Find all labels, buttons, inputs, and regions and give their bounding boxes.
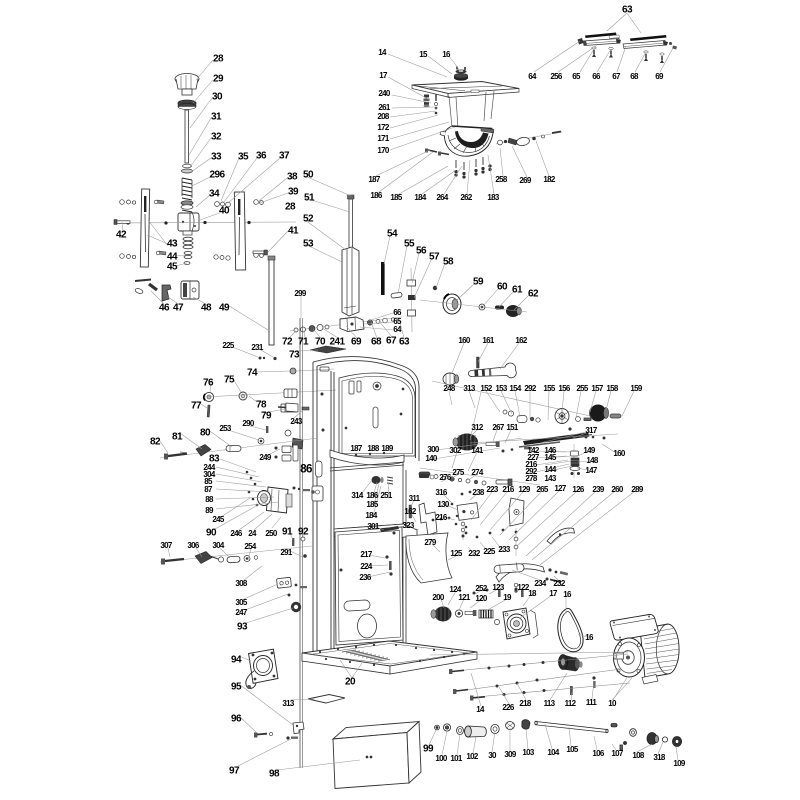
svg-text:46: 46: [159, 303, 170, 314]
svg-text:186: 186: [366, 491, 378, 500]
svg-text:71: 71: [298, 337, 309, 348]
svg-text:247: 247: [235, 608, 247, 617]
svg-text:123: 123: [492, 583, 504, 592]
svg-text:80: 80: [200, 428, 211, 439]
svg-text:187: 187: [350, 444, 362, 453]
svg-text:50: 50: [303, 170, 314, 181]
svg-text:251: 251: [380, 491, 392, 500]
svg-text:37: 37: [279, 151, 290, 162]
svg-text:290: 290: [242, 419, 254, 428]
svg-text:65: 65: [572, 72, 581, 81]
svg-text:72: 72: [282, 337, 293, 348]
svg-text:77: 77: [191, 401, 202, 412]
svg-text:82: 82: [150, 437, 161, 448]
svg-text:91: 91: [282, 527, 293, 538]
svg-text:67: 67: [612, 72, 621, 81]
svg-text:81: 81: [172, 432, 183, 443]
svg-text:160: 160: [613, 449, 625, 458]
svg-text:258: 258: [495, 175, 507, 184]
svg-text:172: 172: [377, 123, 389, 132]
svg-text:54: 54: [387, 229, 398, 240]
svg-text:88: 88: [205, 495, 214, 504]
svg-text:30: 30: [212, 92, 223, 103]
svg-text:68: 68: [371, 337, 382, 348]
svg-text:231: 231: [251, 343, 263, 352]
svg-text:24: 24: [248, 529, 257, 538]
svg-text:112: 112: [565, 699, 577, 708]
svg-text:109: 109: [673, 759, 685, 768]
svg-text:162: 162: [404, 507, 416, 516]
svg-text:159: 159: [630, 384, 642, 393]
svg-text:86: 86: [300, 464, 312, 476]
svg-text:274: 274: [471, 468, 483, 477]
svg-text:171: 171: [377, 134, 389, 143]
svg-text:63: 63: [622, 5, 633, 16]
svg-text:68: 68: [630, 72, 639, 81]
svg-text:61: 61: [512, 285, 523, 296]
svg-text:40: 40: [219, 206, 230, 217]
svg-text:185: 185: [366, 500, 378, 509]
svg-text:18: 18: [528, 589, 537, 598]
svg-text:185: 185: [390, 193, 402, 202]
svg-text:249: 249: [259, 453, 271, 462]
svg-text:156: 156: [558, 384, 570, 393]
svg-text:189: 189: [381, 444, 393, 453]
svg-text:245: 245: [212, 515, 224, 524]
svg-text:225: 225: [222, 341, 234, 350]
svg-text:158: 158: [606, 384, 618, 393]
svg-text:313: 313: [282, 699, 294, 708]
svg-text:125: 125: [450, 549, 462, 558]
svg-text:45: 45: [167, 262, 178, 273]
svg-text:29: 29: [213, 74, 224, 85]
svg-text:30: 30: [488, 751, 497, 760]
svg-text:226: 226: [502, 703, 514, 712]
svg-text:69: 69: [655, 72, 664, 81]
svg-text:223: 223: [486, 485, 498, 494]
svg-text:10: 10: [608, 699, 617, 708]
svg-text:20: 20: [345, 677, 356, 688]
svg-text:265: 265: [536, 485, 548, 494]
svg-text:126: 126: [572, 485, 584, 494]
svg-text:170: 170: [377, 146, 389, 155]
svg-text:318: 318: [653, 753, 665, 762]
svg-text:323: 323: [402, 521, 414, 530]
svg-text:299: 299: [294, 289, 306, 298]
svg-text:60: 60: [497, 282, 508, 293]
svg-text:63: 63: [399, 337, 410, 348]
svg-text:121: 121: [458, 593, 470, 602]
svg-text:141: 141: [471, 446, 483, 455]
svg-text:104: 104: [547, 748, 559, 757]
svg-text:225: 225: [483, 547, 495, 556]
svg-text:95: 95: [231, 682, 242, 693]
svg-text:234: 234: [534, 579, 546, 588]
svg-text:31: 31: [211, 112, 222, 123]
svg-text:275: 275: [452, 468, 464, 477]
svg-text:17: 17: [379, 71, 388, 80]
svg-text:67: 67: [386, 336, 397, 347]
svg-text:183: 183: [487, 193, 499, 202]
svg-text:261: 261: [378, 103, 390, 112]
svg-text:241: 241: [330, 337, 346, 348]
svg-text:267: 267: [492, 423, 504, 432]
svg-text:149: 149: [583, 446, 595, 455]
svg-text:316: 316: [435, 488, 447, 497]
svg-text:144: 144: [544, 465, 556, 474]
svg-text:28: 28: [285, 202, 296, 213]
svg-text:308: 308: [235, 579, 247, 588]
svg-text:17: 17: [549, 589, 558, 598]
svg-text:300: 300: [427, 445, 439, 454]
svg-text:47: 47: [173, 303, 184, 314]
svg-text:16: 16: [563, 590, 572, 599]
svg-text:102: 102: [466, 752, 478, 761]
svg-text:76: 76: [203, 378, 214, 389]
svg-text:307: 307: [160, 541, 172, 550]
svg-text:98: 98: [269, 769, 280, 780]
svg-text:154: 154: [509, 384, 521, 393]
svg-text:147: 147: [585, 466, 597, 475]
svg-text:152: 152: [480, 384, 492, 393]
svg-text:182: 182: [543, 175, 555, 184]
svg-text:184: 184: [365, 511, 377, 520]
svg-text:232: 232: [468, 549, 480, 558]
svg-text:103: 103: [522, 748, 534, 757]
svg-text:87: 87: [204, 485, 213, 494]
svg-text:269: 269: [519, 176, 531, 185]
svg-text:232: 232: [553, 579, 565, 588]
svg-text:94: 94: [231, 655, 242, 666]
svg-text:155: 155: [543, 384, 555, 393]
svg-text:14: 14: [378, 48, 387, 57]
svg-text:187: 187: [368, 175, 380, 184]
svg-text:64: 64: [393, 325, 402, 334]
svg-text:217: 217: [360, 550, 372, 559]
svg-text:33: 33: [211, 152, 222, 163]
svg-text:106: 106: [592, 749, 604, 758]
svg-text:151: 151: [506, 423, 518, 432]
svg-text:28: 28: [213, 54, 224, 65]
svg-text:129: 129: [518, 485, 530, 494]
svg-text:253: 253: [219, 424, 231, 433]
svg-text:49: 49: [219, 303, 230, 314]
svg-text:264: 264: [436, 193, 448, 202]
svg-text:96: 96: [231, 714, 242, 725]
svg-text:55: 55: [404, 239, 415, 250]
svg-text:224: 224: [360, 562, 372, 571]
svg-text:14: 14: [476, 705, 485, 714]
svg-text:314: 314: [351, 491, 363, 500]
svg-text:145: 145: [544, 453, 556, 462]
svg-text:305: 305: [235, 598, 247, 607]
svg-text:90: 90: [206, 528, 217, 539]
svg-text:100: 100: [435, 754, 447, 763]
svg-text:75: 75: [224, 375, 235, 386]
svg-text:240: 240: [378, 89, 390, 98]
svg-text:38: 38: [287, 172, 298, 183]
svg-text:89: 89: [205, 506, 214, 515]
svg-text:153: 153: [495, 384, 507, 393]
svg-text:243: 243: [290, 417, 302, 426]
svg-text:66: 66: [393, 308, 402, 317]
svg-text:161: 161: [482, 336, 494, 345]
svg-text:216: 216: [435, 513, 447, 522]
svg-text:79: 79: [261, 411, 272, 422]
svg-text:51: 51: [304, 193, 315, 204]
svg-text:292: 292: [524, 384, 536, 393]
svg-text:19: 19: [503, 593, 512, 602]
svg-text:73: 73: [289, 350, 300, 361]
svg-text:260: 260: [611, 485, 623, 494]
svg-text:200: 200: [432, 593, 444, 602]
svg-text:218: 218: [519, 699, 531, 708]
svg-text:66: 66: [592, 72, 601, 81]
svg-text:248: 248: [443, 384, 455, 393]
svg-text:93: 93: [237, 622, 248, 633]
svg-text:70: 70: [315, 337, 326, 348]
svg-text:143: 143: [544, 474, 556, 483]
svg-text:291: 291: [280, 548, 292, 557]
svg-text:239: 239: [592, 485, 604, 494]
svg-text:252: 252: [475, 584, 487, 593]
svg-text:111: 111: [586, 698, 598, 707]
svg-text:140: 140: [425, 454, 437, 463]
svg-text:250: 250: [265, 529, 277, 538]
svg-text:52: 52: [303, 214, 314, 225]
svg-text:105: 105: [566, 745, 578, 754]
svg-text:92: 92: [298, 527, 309, 538]
svg-text:35: 35: [238, 152, 249, 163]
svg-text:56: 56: [416, 246, 427, 257]
svg-text:304: 304: [212, 541, 224, 550]
svg-text:317: 317: [585, 426, 597, 435]
svg-text:184: 184: [414, 193, 426, 202]
svg-text:39: 39: [288, 187, 299, 198]
svg-text:262: 262: [460, 193, 472, 202]
svg-text:256: 256: [550, 72, 562, 81]
svg-text:69: 69: [351, 337, 362, 348]
svg-text:99: 99: [423, 744, 434, 755]
svg-text:160: 160: [458, 336, 470, 345]
svg-text:74: 74: [247, 368, 258, 379]
svg-text:148: 148: [586, 456, 598, 465]
svg-text:130: 130: [437, 500, 449, 509]
svg-text:313: 313: [463, 384, 475, 393]
svg-text:188: 188: [367, 444, 379, 453]
svg-text:127: 127: [554, 484, 566, 493]
svg-text:34: 34: [209, 189, 220, 200]
svg-text:236: 236: [359, 573, 371, 582]
svg-text:296: 296: [210, 170, 226, 181]
svg-text:186: 186: [370, 191, 382, 200]
svg-text:157: 157: [591, 384, 603, 393]
svg-text:64: 64: [528, 72, 537, 81]
svg-text:16: 16: [442, 50, 451, 59]
svg-text:255: 255: [576, 384, 588, 393]
svg-text:301: 301: [367, 522, 379, 531]
svg-text:59: 59: [473, 277, 484, 288]
svg-text:16: 16: [585, 633, 594, 642]
svg-text:62: 62: [528, 289, 539, 300]
svg-text:43: 43: [167, 239, 178, 250]
svg-text:113: 113: [544, 699, 556, 708]
svg-text:238: 238: [472, 488, 484, 497]
svg-text:208: 208: [377, 112, 389, 121]
svg-text:107: 107: [611, 749, 623, 758]
svg-text:216: 216: [502, 485, 514, 494]
svg-text:41: 41: [288, 226, 299, 237]
svg-text:42: 42: [116, 230, 127, 241]
svg-text:162: 162: [515, 336, 527, 345]
svg-text:311: 311: [409, 494, 421, 503]
svg-text:108: 108: [632, 751, 644, 760]
svg-text:97: 97: [229, 766, 240, 777]
svg-text:57: 57: [429, 252, 440, 263]
svg-text:78: 78: [256, 400, 267, 411]
svg-text:289: 289: [631, 485, 643, 494]
svg-text:278: 278: [525, 474, 537, 483]
svg-text:53: 53: [303, 239, 314, 250]
svg-text:276: 276: [439, 473, 451, 482]
svg-text:15: 15: [419, 50, 428, 59]
svg-text:32: 32: [211, 132, 222, 143]
svg-text:279: 279: [424, 538, 436, 547]
svg-text:312: 312: [471, 423, 483, 432]
svg-text:48: 48: [201, 303, 212, 314]
svg-text:246: 246: [230, 529, 242, 538]
svg-text:36: 36: [256, 151, 267, 162]
svg-text:233: 233: [498, 545, 510, 554]
svg-text:306: 306: [187, 541, 199, 550]
svg-text:101: 101: [450, 754, 462, 763]
svg-text:58: 58: [443, 257, 454, 268]
svg-text:254: 254: [244, 542, 256, 551]
svg-text:120: 120: [475, 594, 487, 603]
svg-text:302: 302: [449, 446, 461, 455]
svg-text:309: 309: [504, 750, 516, 759]
